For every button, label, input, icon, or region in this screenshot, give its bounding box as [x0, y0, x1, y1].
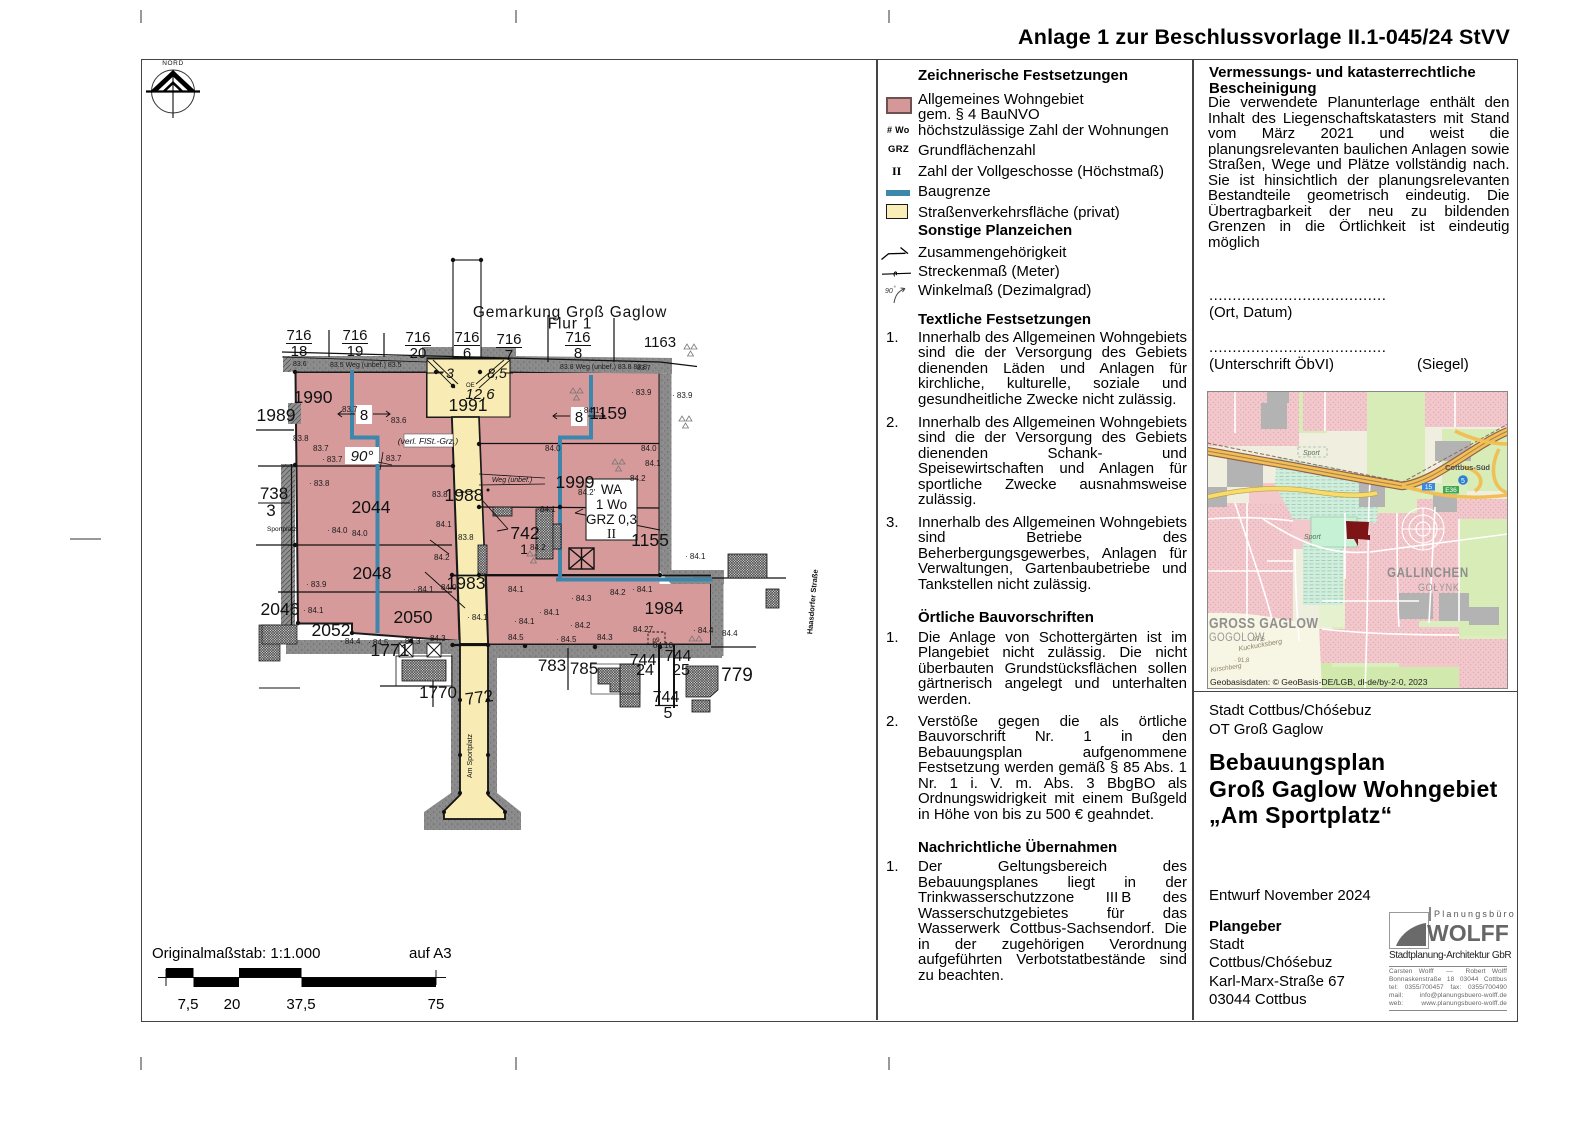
svg-text:· 84.1: · 84.1 — [539, 608, 560, 617]
svg-text:Geobasisdaten: © GeoBasis-DE/L: Geobasisdaten: © GeoBasis-DE/LGB, dl-de/… — [1210, 677, 1428, 687]
svg-text:84.1: 84.1 — [645, 459, 661, 468]
svg-text:83.8: 83.8 — [432, 490, 448, 499]
svg-text:NORD: NORD — [162, 60, 184, 67]
svg-text:· 84.2: · 84.2 — [570, 621, 591, 630]
svg-text:1770: 1770 — [419, 683, 457, 702]
svg-text:716: 716 — [405, 329, 430, 346]
svg-text:5: 5 — [664, 705, 673, 722]
svg-text:90: 90 — [885, 288, 893, 295]
svg-text:84.2: 84.2 — [530, 543, 546, 552]
svg-text:Originalmaßstab: 1:1.000: Originalmaßstab: 1:1.000 — [152, 945, 320, 962]
svg-text:· 84.5: · 84.5 — [556, 635, 577, 644]
svg-text:· 83.6: · 83.6 — [386, 416, 407, 425]
svg-text:83.7: 83.7 — [313, 444, 329, 453]
svg-text:772: 772 — [464, 686, 495, 709]
svg-text:· 83.9: · 83.9 — [672, 391, 693, 400]
svg-text:8,5: 8,5 — [487, 365, 507, 381]
svg-text:785: 785 — [570, 659, 598, 678]
svg-text:3: 3 — [446, 365, 454, 381]
svg-text:· 84.5: · 84.5 — [368, 638, 389, 647]
svg-text:716: 716 — [342, 327, 367, 344]
svg-text:Sport: Sport — [1304, 534, 1322, 541]
svg-text:· 84.4: · 84.4 — [693, 626, 714, 635]
svg-text:· 84.0: · 84.0 — [327, 526, 348, 535]
svg-text:20: 20 — [224, 996, 241, 1013]
svg-text:Sportplatz: Sportplatz — [267, 526, 296, 533]
svg-text:83.7: 83.7 — [637, 365, 651, 372]
svg-text:20: 20 — [410, 345, 427, 362]
svg-text:p9: p9 — [652, 637, 660, 644]
svg-text:783: 783 — [538, 656, 566, 675]
svg-text:3: 3 — [266, 501, 275, 520]
svg-text:· 84.1: · 84.1 — [303, 606, 324, 615]
svg-text:· 84.1: · 84.1 — [579, 406, 600, 415]
svg-text:84.2′: 84.2′ — [578, 488, 596, 497]
svg-text:1: 1 — [520, 541, 528, 557]
svg-text:1155: 1155 — [631, 530, 669, 550]
svg-text:Am Sportplatz: Am Sportplatz — [467, 734, 474, 778]
svg-text:7: 7 — [505, 347, 513, 364]
svg-text:auf A3: auf A3 — [409, 945, 452, 962]
svg-text:6: 6 — [463, 345, 471, 362]
svg-text:OE: OE — [466, 383, 475, 389]
svg-text:GALLINCHEN: GALLINCHEN — [1387, 564, 1469, 580]
svg-text:83.5 Weg (unbef.) 83.5: 83.5 Weg (unbef.) 83.5 — [330, 362, 402, 369]
svg-text:83.6: 83.6 — [293, 361, 307, 368]
svg-text:1989: 1989 — [257, 405, 296, 425]
svg-text:· 83.9: · 83.9 — [306, 580, 327, 589]
svg-text:2044: 2044 — [352, 497, 391, 517]
svg-text:1 Wo: 1 Wo — [596, 497, 627, 512]
svg-text:75: 75 — [428, 996, 445, 1013]
svg-text:5: 5 — [1461, 478, 1465, 485]
svg-text:· 84.1: · 84.1 — [413, 585, 434, 594]
svg-text:1990: 1990 — [294, 387, 333, 407]
svg-text:84.1: 84.1 — [540, 505, 556, 514]
svg-text:84.0: 84.0 — [545, 444, 561, 453]
svg-text:· 84.1: · 84.1 — [685, 552, 706, 561]
svg-text:2046: 2046 — [261, 599, 300, 619]
svg-text:· 83.7: · 83.7 — [381, 454, 402, 463]
svg-text:GROSS GAGLOW: GROSS GAGLOW — [1209, 615, 1318, 631]
svg-text:84.0: 84.0 — [441, 583, 457, 592]
svg-text:· 83.7: · 83.7 — [322, 455, 343, 464]
svg-text:84.2: 84.2 — [610, 588, 626, 597]
svg-text:· 84.3: · 84.3 — [571, 594, 592, 603]
svg-text:84.1: 84.1 — [436, 520, 452, 529]
svg-text:84.3: 84.3 — [597, 633, 613, 642]
svg-text:GOŁYNK: GOŁYNK — [1418, 582, 1459, 594]
svg-text:· 83.9: · 83.9 — [631, 388, 652, 397]
svg-text:716: 716 — [565, 329, 590, 346]
svg-text:II: II — [607, 526, 616, 541]
svg-text:19: 19 — [347, 343, 364, 360]
svg-text:2048: 2048 — [353, 563, 392, 583]
svg-text:8: 8 — [360, 407, 368, 424]
svg-text:84.2: 84.2 — [434, 553, 450, 562]
svg-text:E36: E36 — [1445, 487, 1457, 494]
svg-text:(verl. FlSt.-Grz.): (verl. FlSt.-Grz.) — [398, 436, 459, 446]
svg-text:GRZ 0,3: GRZ 0,3 — [586, 512, 637, 527]
svg-text:716: 716 — [454, 329, 479, 346]
svg-text:742: 742 — [510, 523, 539, 543]
svg-text:716: 716 — [496, 331, 521, 348]
svg-text:84.5: 84.5 — [508, 633, 524, 642]
svg-text:84.0: 84.0 — [352, 529, 368, 538]
svg-text:18: 18 — [291, 343, 308, 360]
svg-text:°: ° — [894, 286, 897, 292]
svg-text:84.27: 84.27 — [633, 625, 654, 634]
svg-text:1988: 1988 — [445, 485, 484, 505]
svg-text:84.1: 84.1 — [508, 585, 524, 594]
svg-text:24: 24 — [636, 662, 654, 679]
svg-text:83.8: 83.8 — [293, 434, 309, 443]
svg-text:8: 8 — [574, 345, 582, 362]
svg-text:90°: 90° — [351, 448, 374, 465]
svg-text:· 84.1: · 84.1 — [467, 613, 488, 622]
svg-text:84.0: 84.0 — [641, 444, 657, 453]
svg-text:· 84.1: · 84.1 — [632, 585, 653, 594]
svg-text:25: 25 — [672, 662, 690, 679]
svg-text:· 84.4: · 84.4 — [340, 637, 361, 646]
svg-text:1984: 1984 — [645, 598, 684, 618]
svg-text:84.3: 84.3 — [430, 634, 446, 643]
svg-text:744: 744 — [653, 689, 680, 706]
svg-text:84.4: 84.4 — [722, 629, 738, 638]
svg-text:WA: WA — [601, 482, 622, 497]
svg-text:Haasdorfer Straße: Haasdorfer Straße — [805, 569, 820, 635]
svg-text:Weg (unbef.): Weg (unbef.) — [492, 477, 532, 484]
svg-text:37,5: 37,5 — [286, 996, 315, 1013]
svg-text:· 84.1: · 84.1 — [514, 617, 535, 626]
svg-text:97,5: 97,5 — [1253, 637, 1265, 643]
svg-text:Sport: Sport — [1303, 450, 1321, 457]
svg-text:· 84.3: · 84.3 — [400, 637, 421, 646]
svg-text:84.2: 84.2 — [630, 474, 646, 483]
svg-text:Cottbus-Süd: Cottbus-Süd — [1445, 463, 1490, 472]
svg-text:15: 15 — [1425, 484, 1433, 491]
svg-text:2050: 2050 — [394, 607, 433, 627]
svg-text:83.8: 83.8 — [458, 533, 474, 542]
svg-text:83.7: 83.7 — [342, 405, 358, 414]
svg-text:· 83.8: · 83.8 — [309, 479, 330, 488]
svg-text:779: 779 — [721, 665, 753, 686]
svg-text:1163: 1163 — [644, 334, 676, 351]
svg-text:716: 716 — [286, 327, 311, 344]
svg-text:7,5: 7,5 — [178, 996, 199, 1013]
svg-text:83.8 Weg (unbef.) 83.8 83.8: 83.8 Weg (unbef.) 83.8 83.8 — [560, 364, 647, 371]
